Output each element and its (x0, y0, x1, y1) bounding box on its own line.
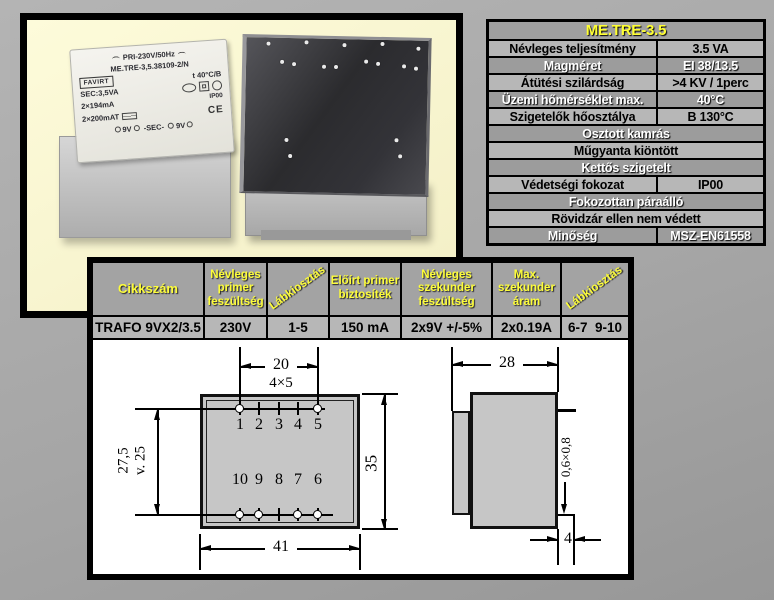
spec-merged-label: Műgyanta kiöntött (489, 143, 763, 158)
pin-circle (293, 510, 302, 519)
transformer-bottom-photo (239, 30, 431, 242)
pin-dot (416, 47, 420, 51)
order-cell-szekunder-aram: 2x0.19A (493, 317, 560, 338)
pin-circle (235, 510, 244, 519)
arrowhead (201, 545, 211, 551)
spec-row: Védetségi fokozatIP00 (489, 177, 763, 192)
dim-width: 41 (265, 538, 297, 556)
footprint-outline (200, 394, 360, 529)
spec-title-row: ME.TRE-3.5 (489, 22, 763, 39)
order-header-labkiosztas-primer: Lábkiosztás (268, 263, 328, 315)
pin-circle-icon (114, 126, 120, 132)
spec-label: Szigetelők hőosztálya (489, 109, 656, 124)
spec-label: Magméret (489, 58, 656, 73)
ext-line (359, 534, 361, 570)
dim-pin-section: 0,6×0,8 (559, 433, 573, 481)
ext-line (451, 347, 453, 411)
order-cell-primer-feszultseg: 230V (205, 317, 266, 338)
order-header-primer-biztositek: Előírt primer biztosíték (330, 263, 400, 315)
spec-label: Névleges teljesítmény (489, 41, 656, 56)
transformer-label-plate: PRI-230V/50Hz ME.TRE-3,5.38109-2/N FAVIR… (69, 39, 235, 164)
pin-number: 8 (269, 471, 289, 489)
double-insulation-icon (199, 81, 210, 92)
arrowhead (241, 363, 251, 369)
spec-row: Átütési szilárdság>4 KV / 1perc (489, 75, 763, 90)
pin-dot (304, 40, 308, 44)
spec-table: ME.TRE-3.5 Névleges teljesítmény3.5 VA M… (486, 19, 766, 246)
pin-dot (342, 43, 346, 47)
spec-label: Védetségi fokozat (489, 177, 656, 192)
pin-circle (254, 510, 263, 519)
spec-merged-label: Kettős szigetelt (489, 160, 763, 175)
spec-value: IP00 (658, 177, 763, 192)
spec-row: Szigetelők hőosztályaB 130°C (489, 109, 763, 124)
pin-number: 10 (230, 471, 250, 489)
dim-height: 35 (363, 448, 382, 478)
order-header-primer-feszultseg: Névleges primer feszültség (205, 263, 266, 315)
order-header-szekunder-feszultseg: Névleges szekunder feszültség (402, 263, 491, 315)
spec-row: MagméretEI 38/13.5 (489, 58, 763, 73)
core-flange-outline (452, 411, 470, 515)
order-cell-labkiosztas-szekunder: 6-7 9-10 (562, 317, 628, 338)
transformer-foot (261, 230, 411, 240)
transformer-front-photo: PRI-230V/50Hz ME.TRE-3,5.38109-2/N FAVIR… (57, 40, 235, 238)
ce-mark: CE (207, 102, 224, 118)
arrowhead (154, 504, 160, 514)
pin-dot (284, 138, 288, 142)
pin-dot (334, 65, 338, 69)
spec-row: Névleges teljesítmény3.5 VA (489, 41, 763, 56)
order-table: Cikkszám Névleges primer feszültség Lábk… (93, 263, 628, 340)
spec-value: 40°C (658, 92, 763, 107)
ext-line (199, 534, 201, 570)
arrowhead (307, 363, 317, 369)
spec-merged-label: Rövidzár ellen nem védett (489, 211, 763, 226)
ext-line (557, 347, 559, 392)
spec-row: MinőségMSZ-EN61558 (489, 228, 763, 243)
order-cell-cikkszam: TRAFO 9VX2/3.5 (93, 317, 203, 338)
round-cert-icon (212, 80, 223, 91)
spec-value: >4 KV / 1perc (658, 75, 763, 90)
spec-row: Fokozottan páraálló (489, 194, 763, 209)
spec-row: Osztott kamrás (489, 126, 763, 141)
pin-tick (297, 402, 299, 415)
arrowhead (349, 545, 359, 551)
coil-icon (178, 51, 186, 57)
order-header-labkiosztas-szekunder: Lábkiosztás (562, 263, 628, 315)
pin-dot (398, 154, 402, 158)
dim-pin-length: 4 (559, 530, 577, 548)
dim-pin-span: 20 (265, 356, 297, 374)
pin-dot (322, 65, 326, 69)
pin-circle-icon (168, 122, 174, 128)
arrowhead (381, 395, 387, 405)
sec-current-text: 2×194mA (81, 98, 115, 112)
dim-pin-pitch: 4×5 (261, 375, 301, 392)
arrowhead (453, 361, 463, 367)
arrowhead (381, 519, 387, 529)
arrowhead (547, 361, 557, 367)
spec-row: Kettős szigetelt (489, 160, 763, 175)
pin-tick (278, 402, 280, 415)
order-cell-szekunder-feszultseg: 2x9V +/-5% (402, 317, 491, 338)
spec-row: Műgyanta kiöntött (489, 143, 763, 158)
pin-number: 7 (288, 471, 308, 489)
arrowhead (154, 410, 160, 420)
datasheet-page: PRI-230V/50Hz ME.TRE-3,5.38109-2/N FAVIR… (0, 0, 774, 600)
dim-row-spacing: 27,5v. 25 (116, 438, 149, 484)
pin-dot (266, 42, 270, 46)
pin-number: 9 (249, 471, 269, 489)
pin-number: 3 (269, 416, 289, 434)
spec-value: 3.5 VA (658, 41, 763, 56)
ext-line (362, 393, 398, 395)
coil-icon (112, 56, 120, 62)
dim-depth: 28 (491, 354, 523, 372)
pin-number: 2 (249, 416, 269, 434)
spec-label: Átütési szilárdság (489, 75, 656, 90)
spec-row: Üzemi hőmérséklet max.40°C (489, 92, 763, 107)
pin-row-line (135, 514, 333, 516)
ip-rating-text: IP00 (209, 91, 223, 102)
pin-dot (376, 62, 380, 66)
pin-circle-icon (133, 125, 139, 131)
pin-number: 1 (230, 416, 250, 434)
pin-circle (235, 404, 244, 413)
dim-line (384, 394, 386, 530)
spec-merged-label: Fokozottan páraálló (489, 194, 763, 209)
pin-tick (278, 508, 280, 521)
ext-line (317, 347, 319, 409)
pin-number: 4 (288, 416, 308, 434)
pin-dot (292, 62, 296, 66)
ext-line (239, 347, 241, 409)
arrowhead (547, 536, 557, 542)
pin-circle-icon (187, 121, 193, 127)
pin-dot (280, 60, 284, 64)
spec-table-title: ME.TRE-3.5 (489, 22, 763, 39)
spec-merged-label: Osztott kamrás (489, 126, 763, 141)
pin-dot (402, 64, 406, 68)
order-cell-labkiosztas-primer: 1-5 (268, 317, 328, 338)
spec-label: Minőség (489, 228, 656, 243)
spec-value: B 130°C (658, 109, 763, 124)
drawing-panel: Cikkszám Névleges primer feszültség Lábk… (87, 257, 634, 580)
spec-value: EI 38/13.5 (658, 58, 763, 73)
pin-number: 5 (308, 416, 328, 434)
pin-dot (288, 154, 292, 158)
oval-cert-icon (182, 83, 197, 93)
pin-number: 6 (308, 471, 328, 489)
transformer-potted-top (239, 34, 431, 197)
pin-dot (414, 67, 418, 71)
pin-dot (394, 138, 398, 142)
order-header-szekunder-aram: Max. szekunder áram (493, 263, 560, 315)
fuse-icon (122, 112, 137, 120)
spec-value: MSZ-EN61558 (658, 228, 763, 243)
pin-stub (558, 409, 576, 412)
spec-row: Rövidzár ellen nem védett (489, 211, 763, 226)
dimension-drawing: 20 4×5 1 2 3 4 5 10 9 8 7 (93, 342, 628, 574)
pin-circle (313, 510, 322, 519)
order-cell-primer-biztositek: 150 mA (330, 317, 400, 338)
pin-dot (380, 42, 384, 46)
ext-line (362, 528, 398, 530)
leader-line (564, 482, 566, 506)
body-outline (470, 392, 558, 529)
spec-label: Üzemi hőmérséklet max. (489, 92, 656, 107)
arrowhead (561, 504, 567, 514)
pin-dot (364, 60, 368, 64)
pin-circle (313, 404, 322, 413)
pin-tick (258, 402, 260, 415)
order-header-cikkszam: Cikkszám (93, 263, 203, 315)
dim-line (157, 409, 159, 515)
